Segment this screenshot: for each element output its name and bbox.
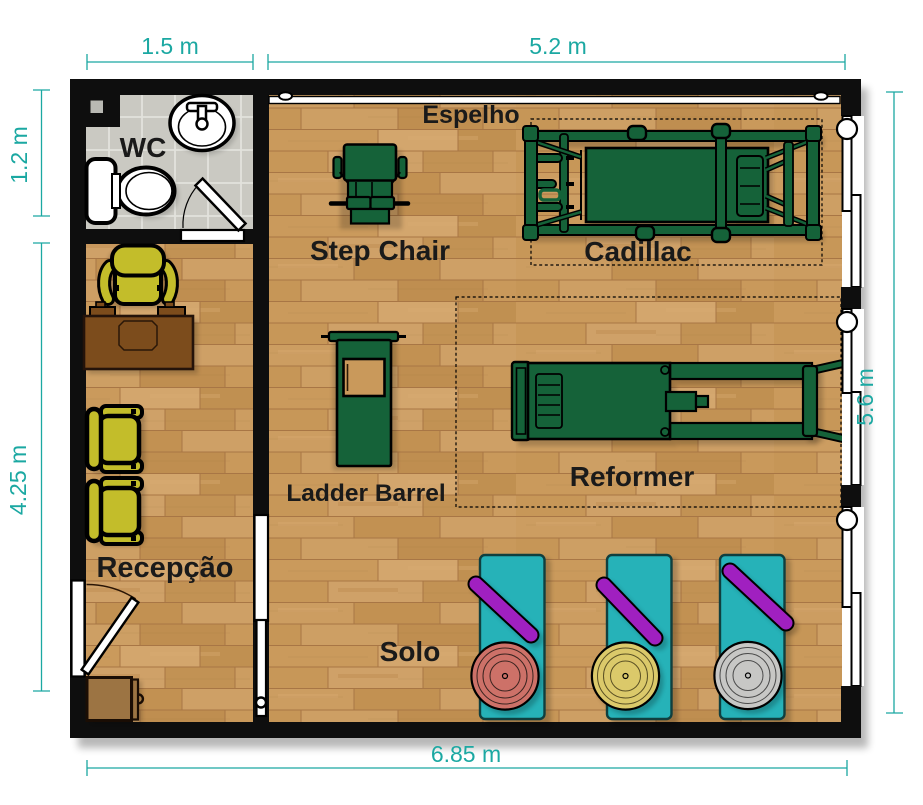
svg-text:Ladder Barrel: Ladder Barrel — [286, 480, 445, 507]
svg-text:Step Chair: Step Chair — [310, 235, 450, 266]
svg-text:Cadillac: Cadillac — [584, 236, 691, 267]
svg-text:Espelho: Espelho — [422, 101, 519, 129]
svg-text:1.2 m: 1.2 m — [6, 126, 32, 184]
svg-text:4.25 m: 4.25 m — [5, 445, 31, 515]
svg-text:WC: WC — [120, 132, 167, 163]
svg-text:6.85 m: 6.85 m — [431, 741, 501, 767]
svg-text:5.2 m: 5.2 m — [529, 33, 587, 59]
svg-text:Recepção: Recepção — [96, 552, 233, 584]
svg-text:Reformer: Reformer — [570, 461, 695, 492]
svg-text:Solo: Solo — [380, 636, 441, 667]
svg-text:1.5 m: 1.5 m — [141, 33, 199, 59]
svg-text:5.6 m: 5.6 m — [852, 368, 878, 426]
